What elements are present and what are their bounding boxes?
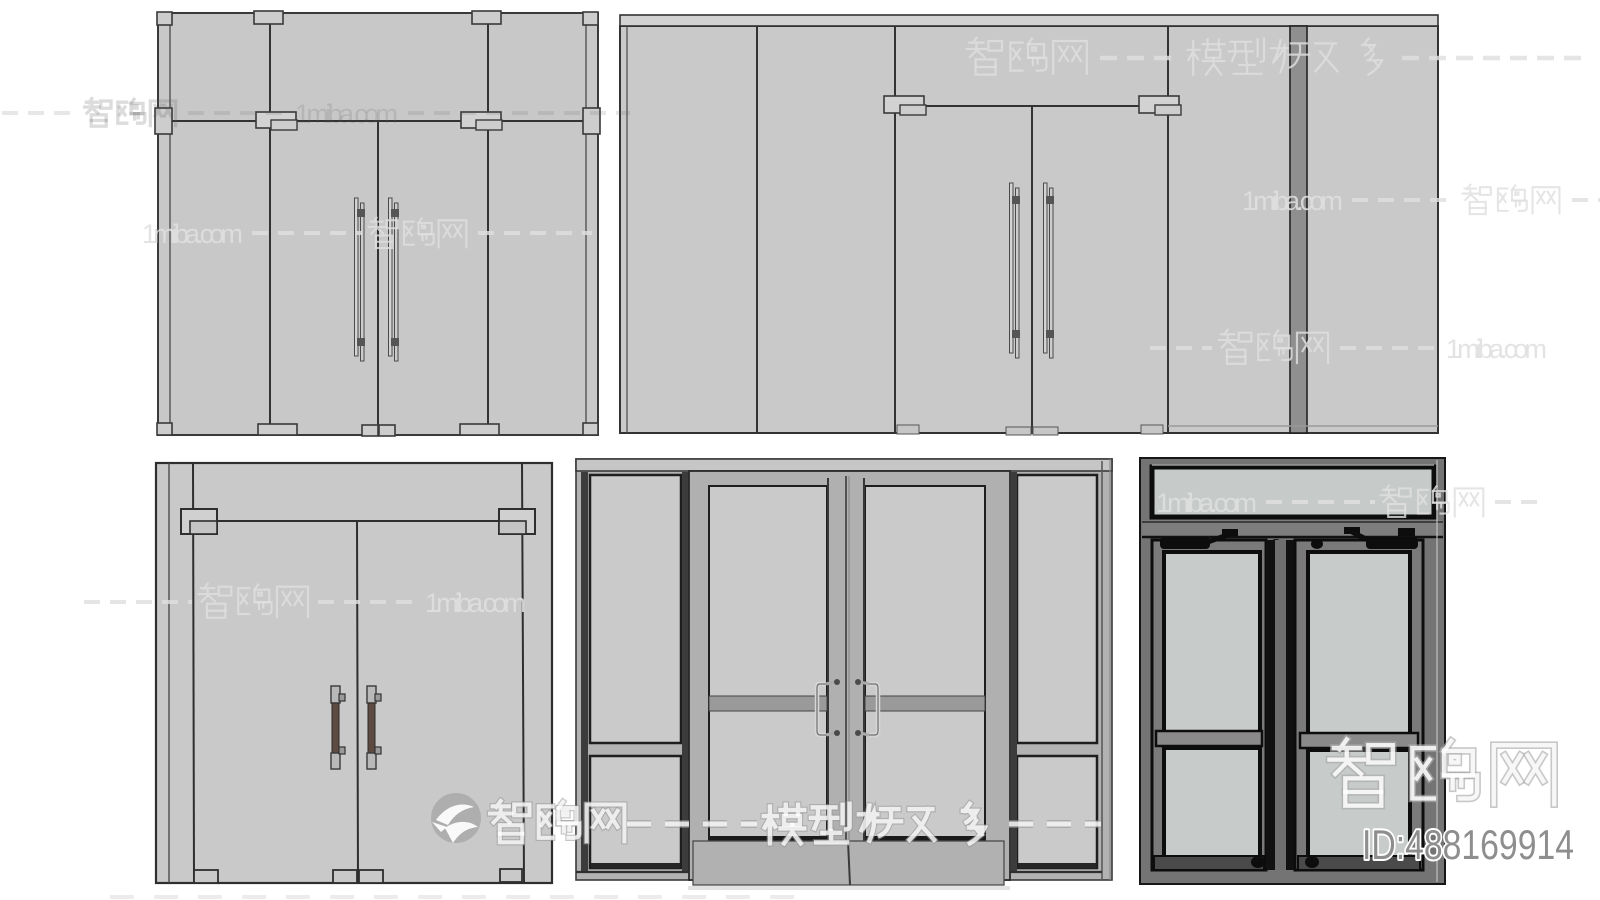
svg-text:1miba.com: 1miba.com [295,99,398,129]
svg-text:1miba.com: 1miba.com [425,588,526,618]
svg-text:1miba.com: 1miba.com [142,219,243,249]
svg-text:1miba.com: 1miba.com [1156,488,1257,518]
svg-text:1miba.com: 1miba.com [1242,186,1343,216]
svg-text:ID:488169914: ID:488169914 [1362,821,1574,868]
svg-text:1miba.com: 1miba.com [1446,334,1547,364]
